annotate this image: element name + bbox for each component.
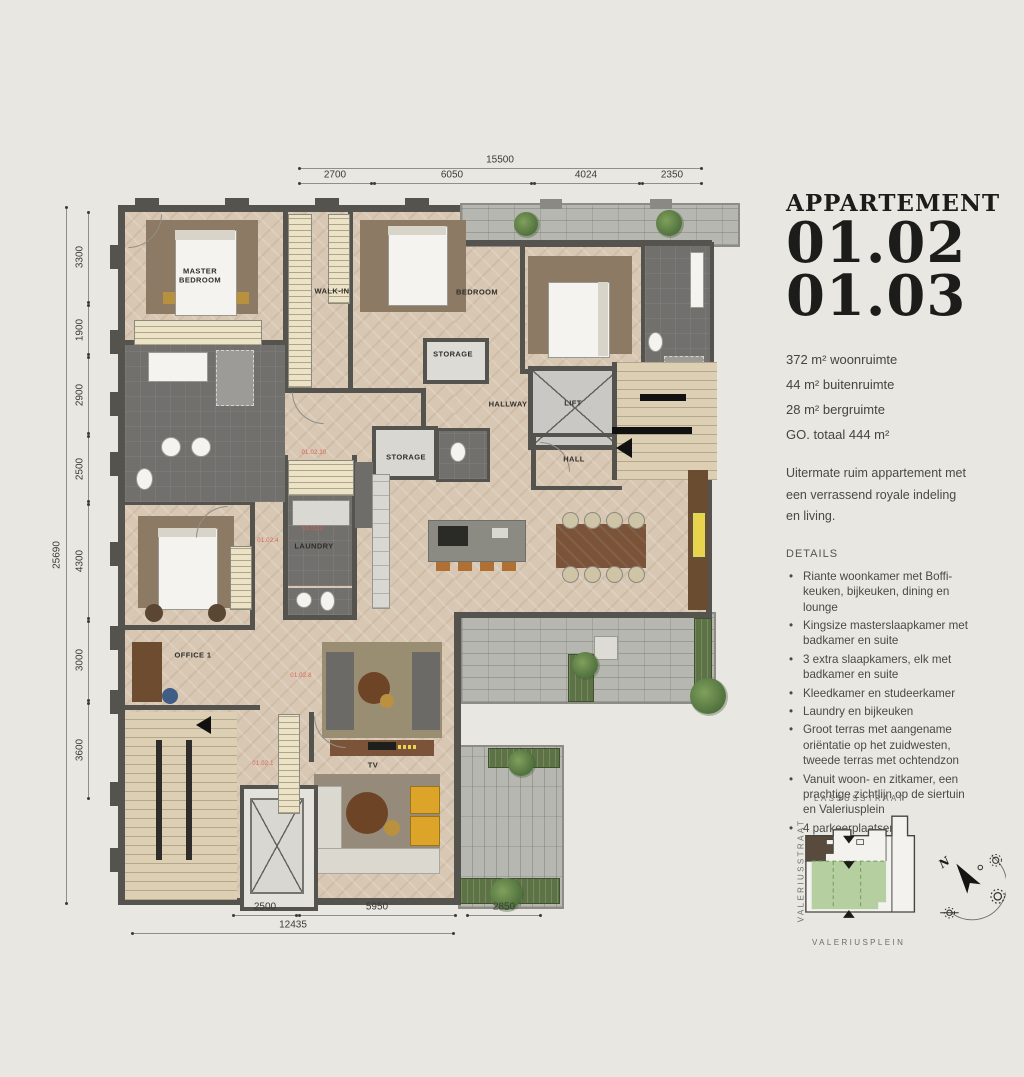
dimension-tick bbox=[700, 182, 703, 185]
dimension-label: 2350 bbox=[661, 170, 683, 181]
dimension-label: 2500 bbox=[75, 458, 86, 480]
dimension-tick bbox=[87, 435, 90, 438]
dining-chair bbox=[562, 566, 579, 583]
compass: N bbox=[934, 850, 1006, 922]
dining-chair bbox=[584, 566, 601, 583]
island-sink bbox=[492, 528, 508, 538]
soundbar bbox=[398, 745, 416, 749]
stairs-entrance bbox=[125, 712, 237, 900]
bedroom2-bed bbox=[388, 226, 448, 306]
dimension-line bbox=[299, 915, 455, 916]
dining-chair bbox=[628, 566, 645, 583]
detail-item: 3 extra slaapkamers, elk met badkamer en… bbox=[786, 652, 972, 683]
dining-chair bbox=[562, 512, 579, 529]
detail-item: Kleedkamer en studeerkamer bbox=[786, 686, 972, 701]
area-stats: 372 m² woonruimte44 m² buitenruimte28 m²… bbox=[786, 352, 972, 442]
detail-item: Groot terras met aangename oriëntatie op… bbox=[786, 722, 972, 768]
detail-item: Kingsize masterslaapkamer met badkamer e… bbox=[786, 618, 972, 649]
side-table bbox=[208, 604, 226, 622]
window-pier bbox=[315, 198, 339, 210]
dimension-label: 4024 bbox=[575, 170, 597, 181]
site-map-block: LASSUSSTRAAT VALERIUSSTRAAT VALERIUSPLEI… bbox=[782, 788, 1012, 968]
fireplace bbox=[692, 512, 706, 558]
room-label: HALL bbox=[563, 454, 585, 463]
entry-closet bbox=[278, 714, 300, 814]
dimension-label: 6050 bbox=[441, 170, 463, 181]
bar-stool bbox=[502, 562, 516, 571]
stair-landing-band bbox=[640, 394, 686, 401]
walkin-closet-left bbox=[288, 214, 312, 388]
dimension-label: 2700 bbox=[324, 170, 346, 181]
plant bbox=[514, 212, 538, 236]
dimension-line bbox=[88, 504, 89, 618]
plant bbox=[508, 750, 534, 776]
dimension-line bbox=[642, 183, 701, 184]
window-pier bbox=[110, 542, 122, 566]
bijkeuken-counter bbox=[372, 474, 390, 609]
nightstand bbox=[237, 292, 249, 304]
bedroom4-wardrobe bbox=[230, 546, 252, 610]
dimension-tick bbox=[373, 182, 376, 185]
window-pier bbox=[110, 782, 122, 806]
dimension-tick bbox=[641, 182, 644, 185]
unit-code-label: 01.02.1 bbox=[252, 761, 273, 767]
sun-icon bbox=[991, 889, 1005, 903]
dimension-tick bbox=[533, 182, 536, 185]
plant bbox=[572, 652, 598, 678]
dimension-tick bbox=[87, 620, 90, 623]
dimension-line bbox=[88, 212, 89, 302]
window-pier bbox=[110, 690, 122, 714]
dimension-label: 12435 bbox=[279, 920, 307, 931]
l-sofa-horizontal bbox=[316, 848, 440, 874]
wall-hall-bottom bbox=[536, 486, 622, 490]
bar-stool bbox=[436, 562, 450, 571]
dimension-label: 5950 bbox=[366, 902, 388, 913]
dimension-line bbox=[88, 621, 89, 700]
stair-rail bbox=[156, 740, 162, 860]
nightstand bbox=[163, 292, 175, 304]
sink bbox=[161, 437, 181, 457]
office-chair bbox=[162, 688, 178, 704]
area-stat: GO. totaal 444 m² bbox=[786, 427, 972, 442]
details-heading: DETAILS bbox=[786, 548, 972, 560]
terrace-pier bbox=[650, 199, 672, 209]
dimension-line bbox=[299, 168, 701, 169]
dimension-tick bbox=[87, 503, 90, 506]
unit-number-1: 01.02 bbox=[786, 217, 972, 270]
washer-dryer bbox=[292, 500, 350, 526]
window-pier bbox=[110, 452, 122, 476]
cooktop bbox=[438, 526, 468, 546]
window-pier bbox=[225, 198, 249, 210]
dimension-label: 2900 bbox=[75, 384, 86, 406]
intro-text: Uitermate ruim appartement met een verra… bbox=[786, 463, 972, 528]
unit-code-label: 01.02.8 bbox=[290, 673, 311, 679]
basin bbox=[296, 592, 312, 608]
terrace-pier bbox=[540, 199, 562, 209]
dimension-line bbox=[132, 933, 453, 934]
unit-code-label: 01.02.4 bbox=[257, 538, 278, 544]
dining-chair bbox=[606, 566, 623, 583]
dimension-label: 3300 bbox=[75, 246, 86, 268]
dimension-tick bbox=[87, 211, 90, 214]
bar-stool bbox=[480, 562, 494, 571]
room-label: STORAGE bbox=[386, 452, 426, 461]
bar-stool bbox=[458, 562, 472, 571]
dimension-label: 2500 bbox=[254, 902, 276, 913]
dimension-tick bbox=[232, 914, 235, 917]
dimension-tick bbox=[65, 902, 68, 905]
sofa bbox=[412, 652, 440, 730]
dimension-tick bbox=[87, 702, 90, 705]
side-table bbox=[380, 694, 394, 708]
dimension-tick bbox=[298, 914, 301, 917]
master-bed-headboard bbox=[175, 230, 235, 240]
room-label: TV bbox=[368, 760, 378, 769]
bathroom3-toilet bbox=[648, 332, 663, 352]
armchair-yellow bbox=[410, 786, 440, 814]
plant bbox=[656, 210, 682, 236]
detail-item: Riante woonkamer met Boffi-keuken, bijke… bbox=[786, 569, 972, 615]
dimension-label: 3000 bbox=[75, 649, 86, 671]
toilet bbox=[320, 591, 335, 611]
dimension-line bbox=[66, 207, 67, 903]
window-pier bbox=[405, 198, 429, 210]
dimension-tick bbox=[87, 797, 90, 800]
dimension-tick bbox=[298, 167, 301, 170]
area-stat: 372 m² woonruimte bbox=[786, 352, 972, 367]
dimension-line bbox=[88, 357, 89, 433]
pantry-cabinets bbox=[355, 462, 373, 528]
info-panel: APPARTEMENT 01.02 01.03 372 m² woonruimt… bbox=[786, 190, 972, 839]
dining-chair bbox=[584, 512, 601, 529]
master-wardrobe bbox=[134, 320, 262, 346]
window-pier bbox=[110, 392, 122, 416]
room-label: MASTER BEDROOM bbox=[167, 267, 233, 286]
dimension-label: 4300 bbox=[75, 550, 86, 572]
window-pier bbox=[135, 198, 159, 210]
stairwell bbox=[612, 362, 717, 480]
dimension-tick bbox=[452, 932, 455, 935]
toilet bbox=[136, 468, 153, 490]
bedroom4-bed bbox=[158, 528, 218, 610]
office-desk bbox=[132, 642, 162, 702]
area-stat: 28 m² bergruimte bbox=[786, 402, 972, 417]
dimension-label: 25690 bbox=[52, 541, 63, 569]
stair-rail bbox=[186, 740, 192, 860]
wc-toilet bbox=[450, 442, 466, 462]
wall-hall-top bbox=[536, 433, 622, 437]
floorplan-brochure-page: MASTER BEDROOMWALK-INBEDROOMSTORAGEHALLW… bbox=[0, 0, 1024, 1077]
room-label: LIFT bbox=[564, 398, 581, 407]
plant bbox=[690, 678, 726, 714]
dimension-tick bbox=[466, 914, 469, 917]
room-label: OFFICE 1 bbox=[175, 650, 212, 659]
dining-chair bbox=[606, 512, 623, 529]
dimension-tick bbox=[131, 932, 134, 935]
window-pier bbox=[110, 245, 122, 269]
room-label: STORAGE bbox=[433, 349, 473, 358]
storage1 bbox=[423, 338, 489, 384]
street-label-bottom: VALERIUSPLEIN bbox=[812, 938, 905, 947]
room-label: HALLWAY bbox=[489, 399, 528, 408]
dimension-label: 1900 bbox=[75, 319, 86, 341]
area-stat: 44 m² buitenruimte bbox=[786, 377, 972, 392]
dimension-tick bbox=[87, 304, 90, 307]
tv-screen bbox=[368, 742, 396, 750]
north-arrow-icon bbox=[950, 859, 981, 894]
dimension-tick bbox=[87, 356, 90, 359]
bathtub bbox=[148, 352, 208, 382]
lift bbox=[528, 366, 622, 450]
side-table bbox=[145, 604, 163, 622]
sink bbox=[191, 437, 211, 457]
dimension-tick bbox=[298, 182, 301, 185]
dimension-tick bbox=[65, 206, 68, 209]
dimension-line bbox=[88, 305, 89, 354]
dimension-line bbox=[299, 183, 371, 184]
wall-hall-left bbox=[531, 433, 536, 490]
armchair-yellow bbox=[410, 816, 440, 846]
wall-rightwing-bottom bbox=[460, 612, 712, 618]
dimension-line bbox=[233, 915, 296, 916]
dimension-label: 15500 bbox=[486, 155, 514, 166]
dining-chair bbox=[628, 512, 645, 529]
dimension-label: 3600 bbox=[75, 739, 86, 761]
window-pier bbox=[110, 848, 122, 872]
room-label: WALK-IN bbox=[315, 286, 350, 295]
wall-living-right bbox=[454, 612, 461, 905]
unit-number-2: 01.03 bbox=[786, 270, 972, 323]
dining-table bbox=[556, 524, 646, 568]
unit-code-label: 01.02.2 bbox=[302, 526, 323, 532]
dimension-tick bbox=[539, 914, 542, 917]
dimension-line bbox=[88, 703, 89, 798]
dimension-line bbox=[534, 183, 639, 184]
detail-item: Laundry en bijkeuken bbox=[786, 704, 972, 719]
wall-interior bbox=[283, 615, 357, 620]
dimension-line bbox=[467, 915, 540, 916]
dimension-tick bbox=[700, 167, 703, 170]
unit-code-label: 01.02.10 bbox=[302, 450, 327, 456]
stair-direction-arrow bbox=[616, 438, 632, 458]
site-map bbox=[800, 810, 932, 926]
dimension-line bbox=[88, 436, 89, 501]
shower bbox=[216, 350, 254, 406]
room-label: LAUNDRY bbox=[294, 541, 333, 550]
dimension-tick bbox=[454, 914, 457, 917]
dimension-label: 2850 bbox=[493, 902, 515, 913]
stair-direction-arrow bbox=[196, 716, 211, 734]
laundry-closet bbox=[288, 460, 354, 496]
terrace-table bbox=[594, 636, 618, 660]
bedroom3-headboard bbox=[598, 282, 608, 356]
wall-interior bbox=[118, 625, 255, 630]
stair-landing-band bbox=[612, 427, 692, 434]
compass-north-label: N bbox=[935, 853, 953, 871]
wall-interior bbox=[118, 705, 260, 710]
street-label-top: LASSUSSTRAAT bbox=[814, 794, 905, 803]
coffee-table bbox=[346, 792, 388, 834]
dimension-line bbox=[374, 183, 531, 184]
bathroom3-sinks bbox=[690, 252, 704, 308]
side-table bbox=[384, 820, 400, 836]
bedroom2-headboard bbox=[388, 226, 446, 235]
room-label: BEDROOM bbox=[456, 287, 498, 296]
